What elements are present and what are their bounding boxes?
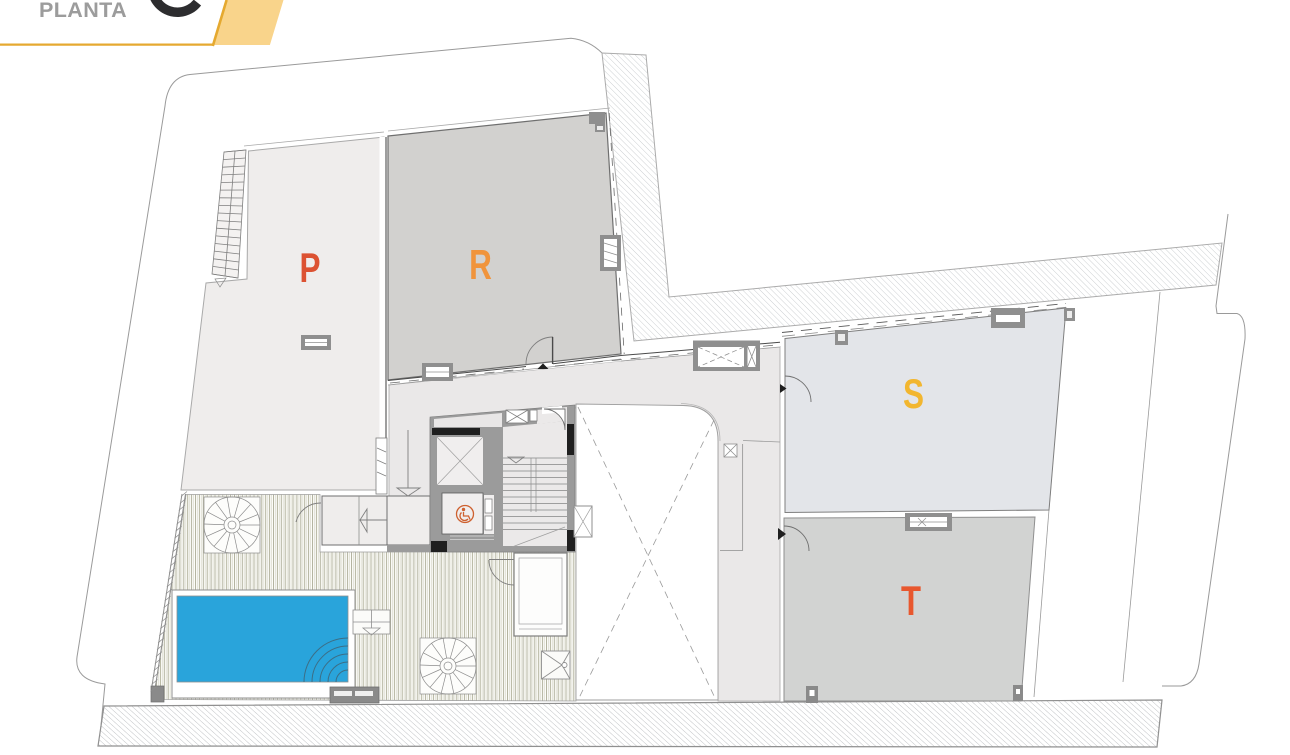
svg-text:T: T [901, 577, 921, 624]
svg-text:S: S [903, 370, 924, 418]
svg-text:R: R [469, 241, 492, 289]
svg-text:P: P [299, 244, 320, 292]
svg-text:PLANTA: PLANTA [39, 0, 127, 22]
